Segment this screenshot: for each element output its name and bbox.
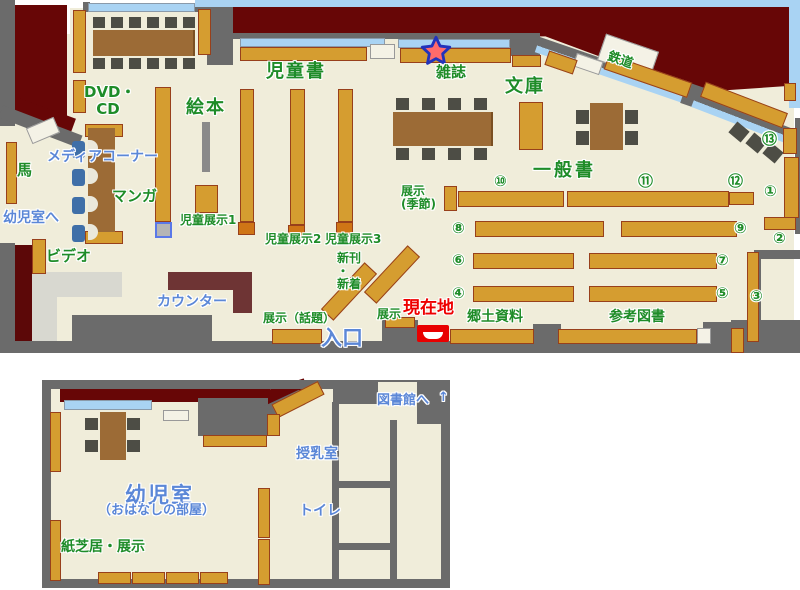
- media-chair: [72, 169, 85, 186]
- kids-shelf-bottom-1: [98, 572, 131, 584]
- kids-shelf-bottom-2: [132, 572, 165, 584]
- shelf-6: [473, 253, 574, 269]
- chair: [396, 98, 409, 110]
- kids-window: [64, 400, 152, 410]
- shelf-10: [458, 191, 564, 207]
- counter-desk-v: [233, 272, 252, 313]
- sky-top-strip: [195, 0, 800, 7]
- no6-label: ⑥: [452, 252, 465, 269]
- no13-label: ⑬: [762, 131, 777, 148]
- no8-label: ⑧: [452, 220, 465, 237]
- shelf-bunko: [519, 102, 543, 150]
- tenji-wadai-label: 展示（話題）: [263, 312, 335, 325]
- center-table: [393, 112, 493, 146]
- kids-room-wall-h1: [332, 481, 394, 488]
- video-label: ビデオ: [46, 248, 91, 265]
- upper-floor-map: [0, 0, 800, 360]
- shelf-1-vert: [784, 157, 799, 218]
- iriguchi-label: 入口: [321, 327, 363, 350]
- genzaichi-label: 現在地: [403, 299, 454, 318]
- kids-room-wall-v1: [332, 402, 339, 579]
- media-chair: [72, 197, 85, 214]
- kids-table: [100, 412, 126, 460]
- tenji-entrance-label: 展示: [377, 308, 401, 321]
- shelf-jidou-tenji1: [195, 185, 218, 213]
- kamishibai-tenji-label: 紙芝居・展示: [61, 540, 145, 555]
- chair: [474, 98, 487, 110]
- to-toshokan-arrow-label: ↑: [438, 391, 449, 405]
- chair: [422, 98, 435, 110]
- kids-shelf-bottom-4: [200, 572, 228, 584]
- chair: [625, 131, 638, 145]
- shelf-tall-2: [240, 89, 254, 222]
- no2-label: ②: [773, 230, 786, 247]
- tenji-kisetsu-label: 展示 (季節): [401, 185, 436, 211]
- chair: [127, 440, 140, 452]
- shelf-study-right: [198, 9, 211, 55]
- jyunyuushitsu-label: 授乳室: [296, 447, 338, 462]
- sankou-tosho-label: 参考図書: [609, 310, 665, 325]
- chair: [93, 17, 105, 28]
- uma-label: 馬: [17, 162, 32, 179]
- no1-label: ①: [764, 183, 777, 200]
- to-youjishitsu-label: 幼児室へ: [3, 211, 59, 226]
- chair: [448, 98, 461, 110]
- shelf-kyoudo: [450, 329, 534, 344]
- current-location-marker: [417, 325, 449, 342]
- chair: [111, 17, 123, 28]
- no12-label: ⑫: [728, 173, 743, 190]
- kids-center-block: [198, 398, 268, 436]
- chair: [396, 148, 409, 160]
- shelf-topwall-1: [240, 47, 367, 61]
- jidou-tenji3-label: 児童展示3: [325, 233, 381, 246]
- chair: [576, 110, 589, 124]
- chair: [129, 17, 141, 28]
- dark-wall-strip: [15, 245, 32, 343]
- chair: [147, 17, 159, 28]
- chair: [111, 58, 123, 69]
- shelf-9: [621, 221, 737, 237]
- chair: [183, 58, 195, 69]
- ehon-pillar: [202, 122, 210, 172]
- kids-shelf-under-block: [203, 435, 267, 447]
- display-top-white: [370, 44, 395, 59]
- manga-label: マンガ: [112, 188, 157, 205]
- bunko-label: 文庫: [505, 77, 545, 97]
- no11-label: ⑪: [638, 173, 653, 190]
- shelf-11: [567, 191, 729, 207]
- shelf-13-vert: [783, 128, 797, 154]
- kids-passage-block-a: [333, 380, 378, 404]
- shelf-4: [473, 286, 574, 302]
- chair: [127, 418, 140, 430]
- shelf-5: [589, 286, 717, 302]
- no10-label: ⑩: [494, 173, 507, 190]
- no9-label: ⑨: [734, 220, 747, 237]
- entrance-mat-h: [32, 272, 122, 297]
- kids-room-wall-h2: [332, 543, 394, 550]
- media-chair: [72, 225, 85, 242]
- jidou-tenji1-label: 児童展示1: [180, 214, 236, 227]
- shelf-right-tiny: [784, 83, 796, 101]
- kids-room-wall-v2: [390, 420, 397, 579]
- chair: [183, 17, 195, 28]
- media-corner-label: メディアコーナー: [47, 150, 158, 165]
- kids-shelf-mid-1: [258, 488, 270, 538]
- shelf-7: [589, 253, 717, 269]
- chair: [474, 148, 487, 160]
- shelf-topwall-2: [400, 48, 511, 63]
- wall-counter-block: [72, 315, 212, 353]
- ohanashi-no-heya-label: （おはなしの部屋）: [98, 504, 215, 518]
- no7-label: ⑦: [716, 252, 729, 269]
- kids-shelf-mid-2: [258, 539, 270, 585]
- window-study-room: [88, 3, 195, 12]
- kids-white-box: [163, 410, 189, 421]
- zasshi-label: 雑誌: [436, 64, 466, 81]
- chair: [85, 418, 98, 430]
- window-top-2: [398, 39, 510, 48]
- white-box-bottom: [697, 328, 711, 344]
- kiosk-box: [155, 222, 172, 238]
- jidou-tenji2-label: 児童展示2: [265, 233, 321, 246]
- shelf-study-left: [73, 10, 86, 73]
- kids-wall-right: [441, 380, 450, 588]
- fiction-table: [590, 103, 623, 150]
- shelf-video: [32, 239, 46, 274]
- window-top-1: [240, 38, 385, 47]
- kids-shelf-bottom-3: [166, 572, 199, 584]
- chair: [576, 131, 589, 145]
- kids-shelf-left-2: [50, 520, 61, 581]
- shelf-corner-small: [512, 55, 541, 67]
- shelf-12: [729, 192, 754, 205]
- shelf-tall-4: [338, 89, 353, 222]
- counter-label: カウンター: [157, 295, 227, 310]
- study-table: [93, 30, 195, 56]
- shelf-tall-3: [290, 89, 305, 225]
- wall-notch-1: [533, 324, 561, 352]
- chair: [129, 58, 141, 69]
- chair: [448, 148, 461, 160]
- shelf-kisetsu: [444, 186, 457, 211]
- to-toshokan-label: 図書館へ: [377, 394, 429, 408]
- chair: [147, 58, 159, 69]
- chair: [165, 17, 177, 28]
- library-floor-map: 児童書絵本DVD・ CDメディアコーナーマンガ馬幼児室へビデオカウンター児童展示…: [0, 0, 800, 590]
- entrance-mat-v: [32, 297, 57, 342]
- kids-shelf-left-1: [50, 412, 61, 472]
- shelf-uma: [6, 142, 17, 204]
- toilet-label: トイレ: [299, 504, 341, 519]
- shinkan-shinchaku-label: 新刊 ・ 新着: [337, 252, 361, 292]
- shelf-wadai: [272, 329, 322, 344]
- display-cap-2: [238, 222, 255, 235]
- wall-left-bottom: [0, 243, 15, 353]
- jidousho-label: 児童書: [266, 62, 326, 82]
- no5-label: ⑤: [716, 285, 729, 302]
- chair: [422, 148, 435, 160]
- no4-label: ④: [452, 285, 465, 302]
- shelf-bottom-vert: [731, 328, 744, 353]
- wall-corner: [510, 36, 540, 56]
- ehon-label: 絵本: [186, 98, 226, 118]
- no3-label: ③: [750, 288, 763, 305]
- kyoudo-shiryou-label: 郷土資料: [467, 310, 523, 325]
- shelf-sankou: [558, 329, 697, 344]
- ippansho-label: 一般書: [533, 161, 596, 181]
- chair: [93, 58, 105, 69]
- dvd-cd-label: DVD・ CD: [84, 84, 132, 117]
- shelf-8: [475, 221, 604, 237]
- chair: [625, 110, 638, 124]
- chair: [165, 58, 177, 69]
- kids-shelf-small-vert: [267, 414, 280, 436]
- chair: [85, 440, 98, 452]
